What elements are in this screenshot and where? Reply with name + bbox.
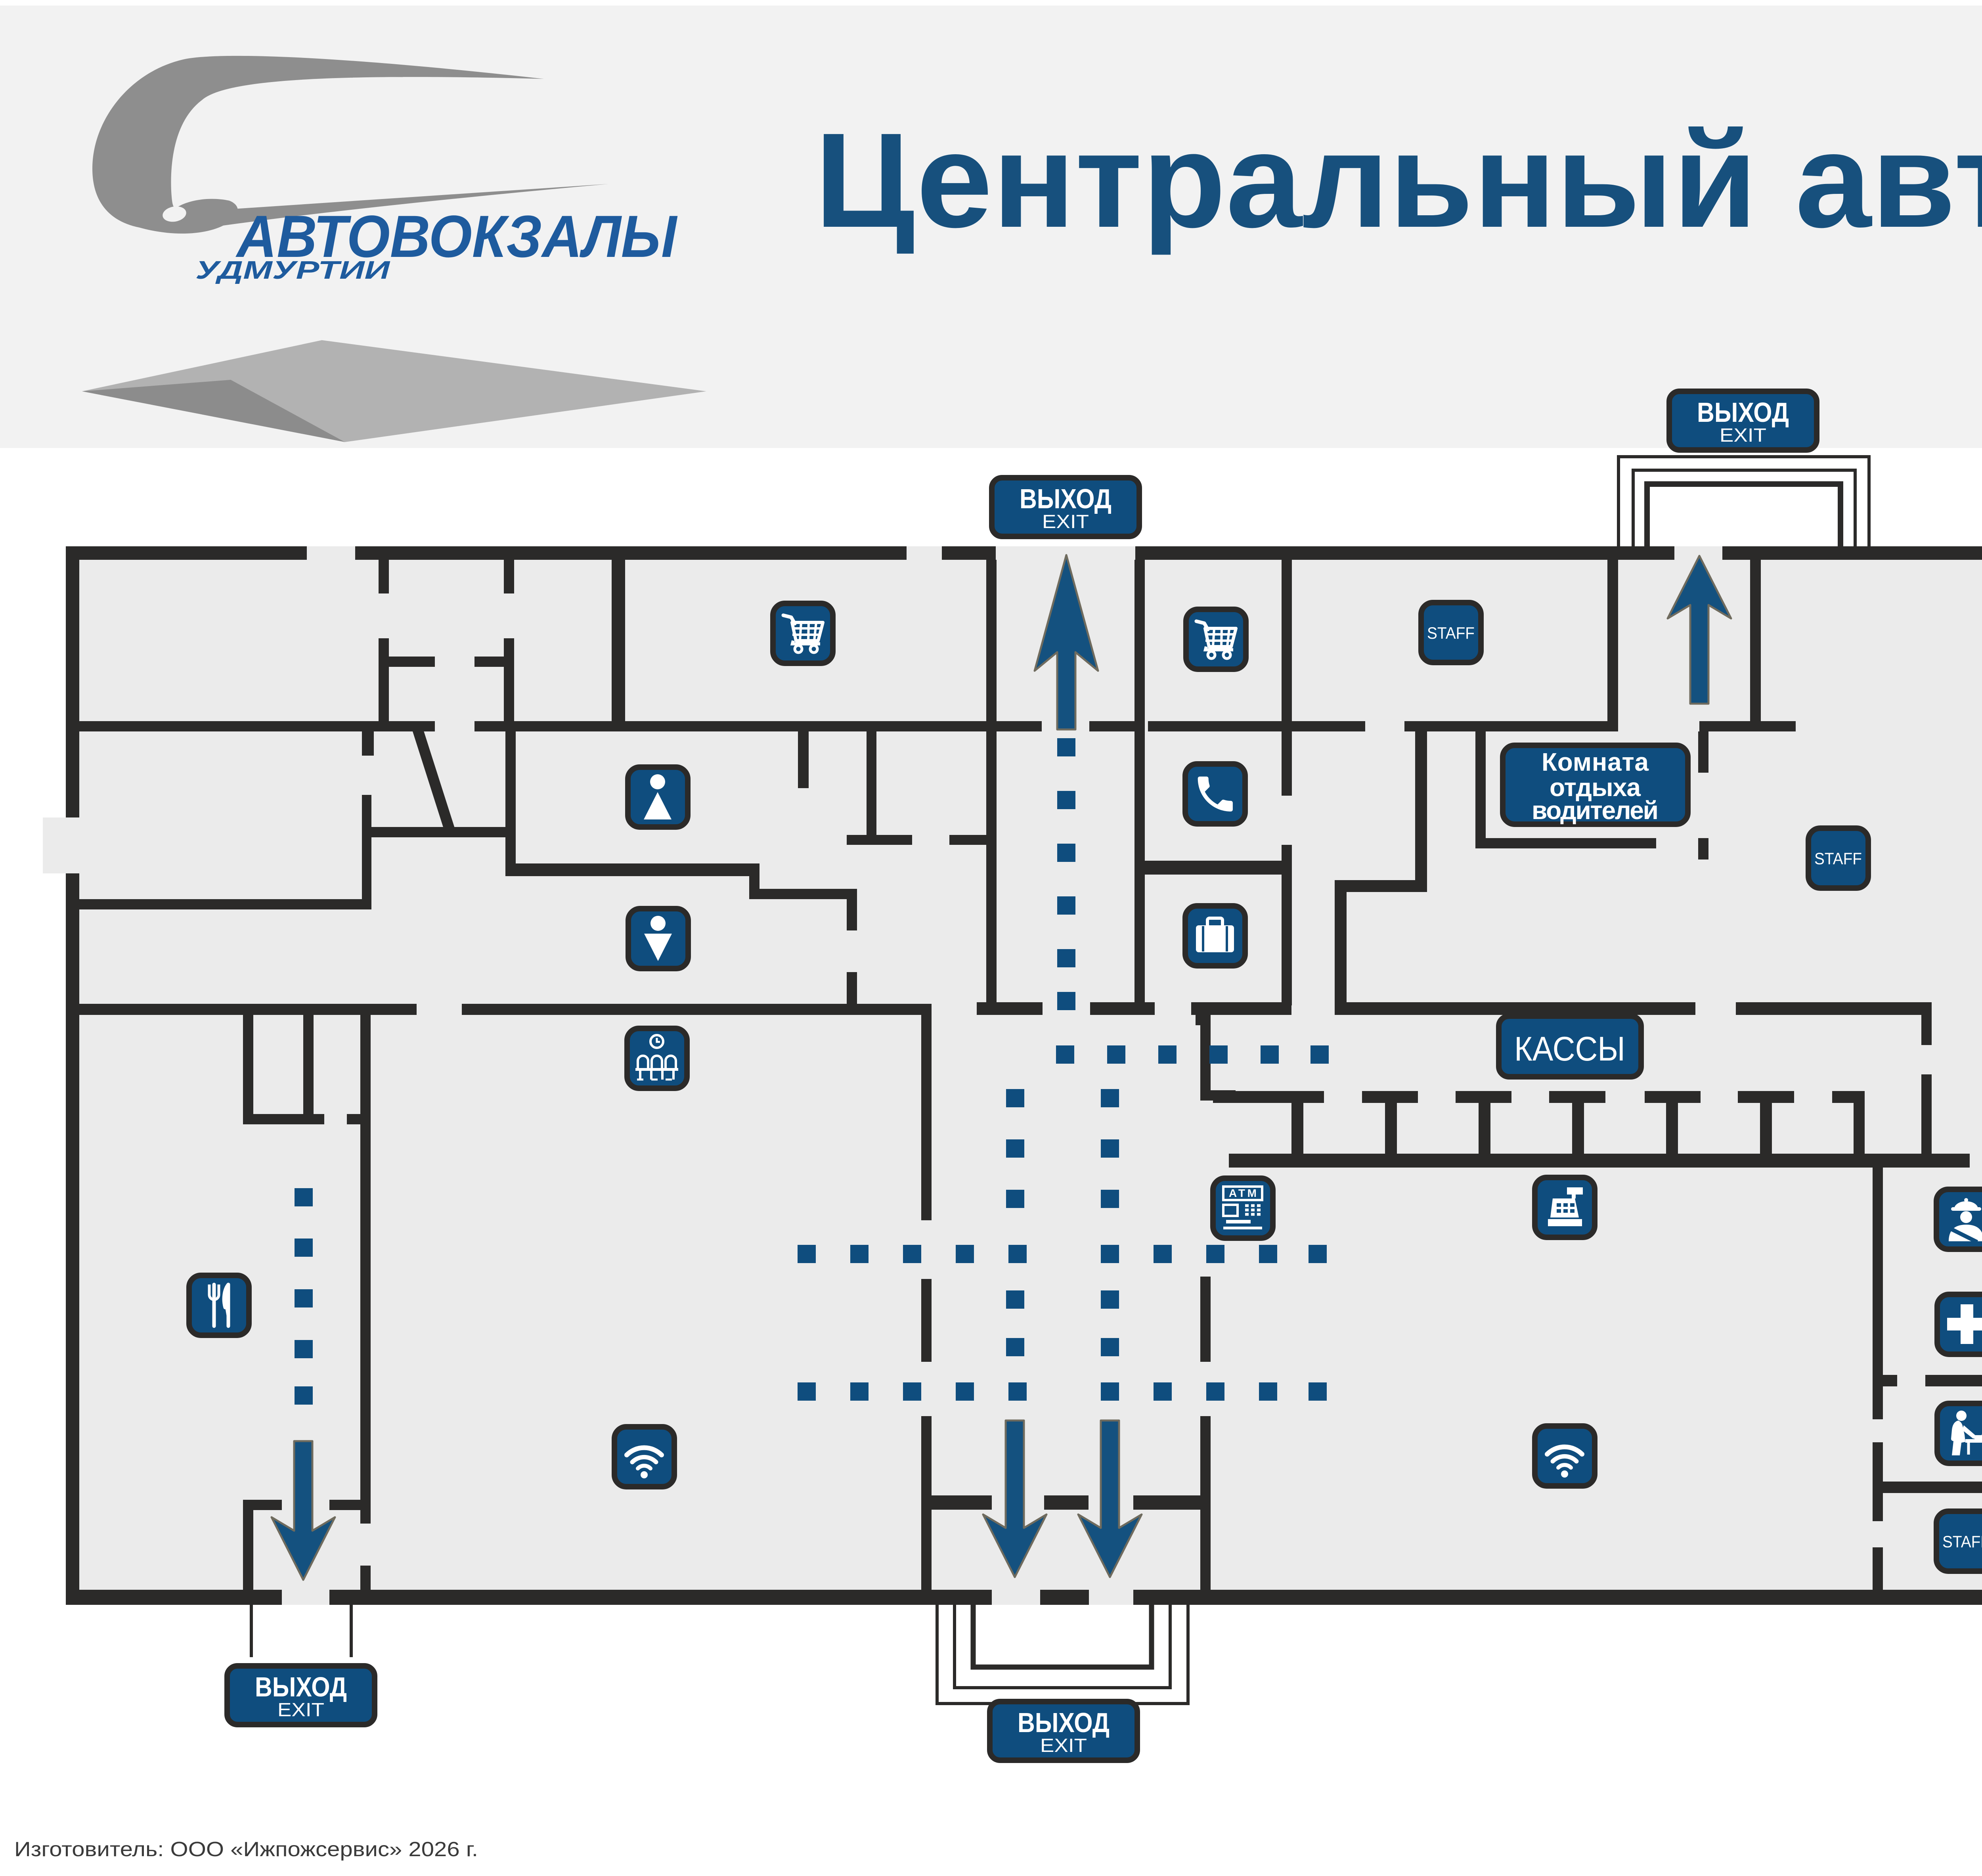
svg-text:водителей: водителей — [1532, 796, 1659, 825]
svg-text:Комната: Комната — [1542, 748, 1649, 776]
svg-text:Изготовитель: ООО «Ижпожсервис: Изготовитель: ООО «Ижпожсервис» 2026 г. — [14, 1838, 478, 1861]
svg-text:КАССЫ: КАССЫ — [1514, 1030, 1625, 1068]
svg-text:Центральный автовокзал: Центральный автовокзал — [815, 105, 1982, 256]
svg-text:УДМУРТИИ: УДМУРТИИ — [195, 256, 391, 284]
